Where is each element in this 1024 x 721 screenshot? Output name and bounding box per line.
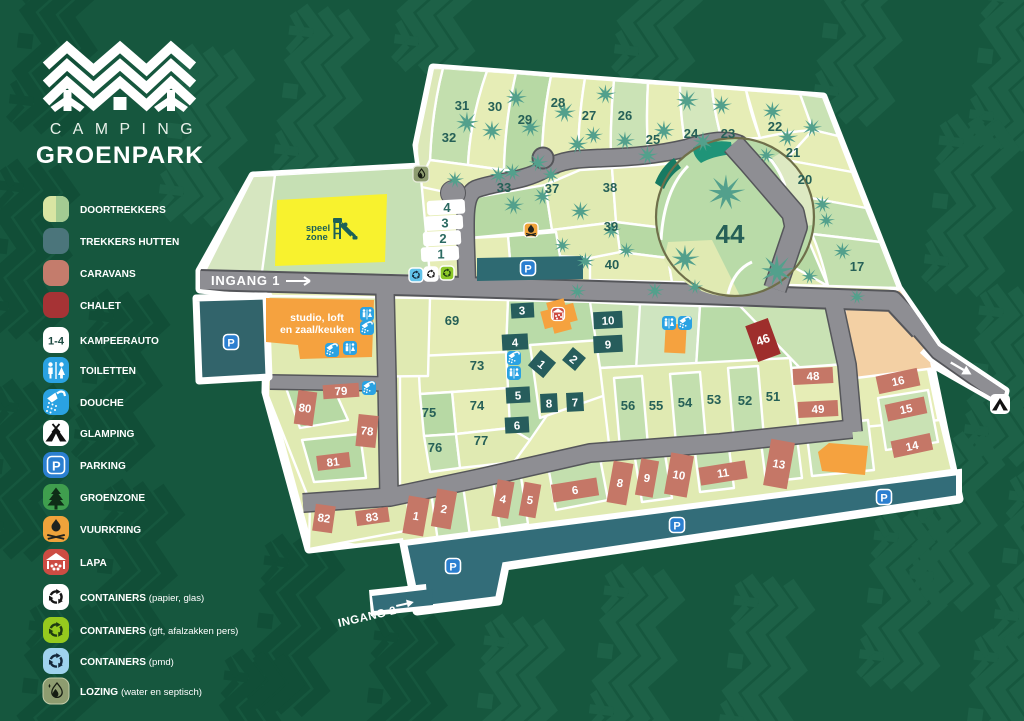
svg-text:1-4: 1-4 (48, 336, 65, 348)
svg-text:82: 82 (317, 512, 331, 526)
svg-text:7: 7 (572, 397, 579, 409)
svg-text:23: 23 (721, 126, 735, 141)
svg-text:INGANG 1: INGANG 1 (211, 273, 280, 288)
svg-text:10: 10 (601, 315, 614, 328)
svg-text:52: 52 (738, 393, 752, 408)
svg-text:P: P (449, 562, 456, 574)
svg-text:8: 8 (546, 398, 554, 410)
svg-text:54: 54 (678, 395, 693, 410)
svg-text:11: 11 (716, 467, 730, 481)
svg-text:73: 73 (470, 358, 484, 373)
svg-text:79: 79 (334, 386, 348, 399)
svg-text:P: P (227, 338, 234, 350)
svg-text:zone: zone (306, 232, 328, 243)
svg-text:TREKKERS HUTTEN: TREKKERS HUTTEN (80, 237, 179, 248)
svg-text:29: 29 (518, 112, 532, 127)
svg-text:53: 53 (707, 392, 721, 407)
svg-text:44: 44 (716, 219, 745, 249)
svg-text:81: 81 (326, 456, 341, 470)
svg-text:PARKING: PARKING (80, 461, 126, 472)
svg-text:2: 2 (439, 231, 446, 246)
svg-text:GROENZONE: GROENZONE (80, 493, 145, 504)
svg-text:1: 1 (437, 247, 444, 262)
svg-text:77: 77 (474, 433, 488, 448)
svg-text:31: 31 (455, 98, 469, 113)
svg-text:83: 83 (365, 511, 379, 525)
svg-text:TOILETTEN: TOILETTEN (80, 366, 136, 377)
svg-text:17: 17 (850, 259, 864, 274)
svg-text:en zaal/keuken: en zaal/keuken (280, 324, 354, 336)
svg-text:40: 40 (605, 257, 619, 272)
svg-text:55: 55 (649, 398, 663, 413)
svg-text:48: 48 (806, 371, 820, 384)
svg-text:CAMPING: CAMPING (50, 121, 204, 138)
svg-text:P: P (52, 459, 61, 474)
svg-text:CARAVANS: CARAVANS (80, 269, 136, 280)
svg-text:27: 27 (582, 108, 596, 123)
svg-text:69: 69 (445, 313, 459, 328)
svg-text:3: 3 (519, 305, 526, 317)
svg-text:24: 24 (684, 126, 699, 141)
svg-text:22: 22 (768, 119, 782, 134)
svg-text:KAMPEERAUTO: KAMPEERAUTO (80, 336, 159, 347)
svg-text:9: 9 (605, 339, 612, 351)
svg-text:VUURKRING: VUURKRING (80, 525, 141, 536)
svg-text:25: 25 (646, 132, 660, 147)
svg-text:GROENPARK: GROENPARK (36, 142, 204, 169)
svg-text:CHALET: CHALET (80, 301, 122, 312)
svg-text:DOORTREKKERS: DOORTREKKERS (80, 205, 166, 216)
svg-text:P: P (524, 264, 531, 276)
svg-text:38: 38 (603, 180, 617, 195)
svg-text:78: 78 (360, 425, 375, 438)
svg-text:13: 13 (771, 458, 786, 472)
svg-text:28: 28 (551, 95, 565, 110)
svg-text:74: 74 (470, 398, 485, 413)
svg-text:4: 4 (443, 200, 451, 215)
svg-text:LAPA: LAPA (80, 558, 107, 569)
svg-text:51: 51 (766, 389, 780, 404)
svg-text:GLAMPING: GLAMPING (80, 429, 135, 440)
svg-text:5: 5 (515, 390, 523, 402)
svg-text:LOZING (water en septisch): LOZING (water en septisch) (80, 687, 202, 698)
svg-text:DOUCHE: DOUCHE (80, 398, 124, 409)
svg-text:CONTAINERS (gft, afalzakken pe: CONTAINERS (gft, afalzakken pers) (80, 626, 238, 637)
svg-text:26: 26 (618, 108, 632, 123)
svg-text:CONTAINERS (papier, glas): CONTAINERS (papier, glas) (80, 593, 204, 604)
svg-text:21: 21 (786, 145, 800, 160)
svg-text:P: P (673, 521, 680, 533)
svg-text:80: 80 (298, 402, 312, 416)
svg-text:49: 49 (811, 404, 824, 417)
svg-text:75: 75 (422, 405, 436, 420)
svg-text:P: P (880, 493, 887, 505)
svg-text:studio, loft: studio, loft (290, 312, 344, 324)
svg-text:6: 6 (514, 420, 521, 432)
svg-text:4: 4 (512, 337, 520, 349)
svg-text:CONTAINERS (pmd): CONTAINERS (pmd) (80, 657, 174, 668)
svg-text:32: 32 (442, 130, 456, 145)
svg-text:20: 20 (798, 172, 812, 187)
svg-text:76: 76 (428, 440, 442, 455)
svg-text:3: 3 (441, 216, 448, 231)
svg-text:10: 10 (671, 469, 686, 483)
svg-text:33: 33 (497, 180, 511, 195)
svg-text:37: 37 (545, 181, 559, 196)
svg-text:30: 30 (488, 99, 502, 114)
svg-text:56: 56 (621, 398, 635, 413)
svg-text:39: 39 (604, 219, 618, 234)
